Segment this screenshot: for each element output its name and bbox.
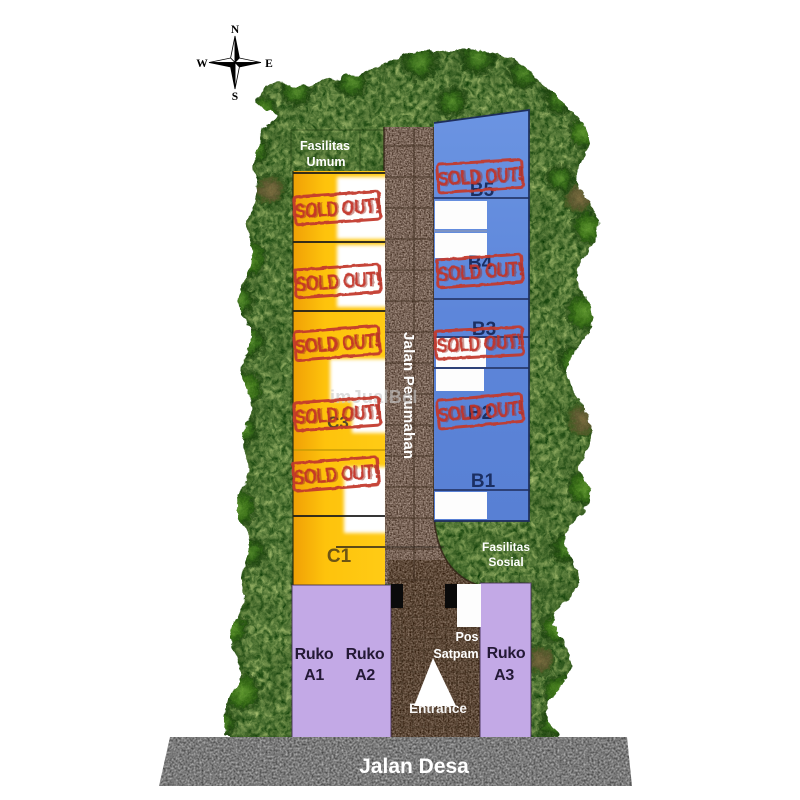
svg-text:C1: C1	[327, 546, 352, 567]
svg-text:Ruko: Ruko	[295, 646, 334, 663]
svg-text:Umum: Umum	[307, 155, 346, 169]
svg-text:A3: A3	[494, 667, 514, 684]
svg-text:Fasilitas: Fasilitas	[300, 139, 350, 153]
svg-text:Ruko: Ruko	[487, 645, 526, 662]
svg-text:Entrance: Entrance	[409, 701, 467, 716]
svg-text:N: N	[231, 24, 240, 36]
svg-text:Satpam: Satpam	[433, 647, 478, 661]
svg-text:Fasilitas: Fasilitas	[482, 540, 530, 554]
svg-text:A2: A2	[355, 667, 375, 684]
svg-text:Pos: Pos	[456, 630, 479, 644]
svg-text:A1: A1	[304, 667, 324, 684]
svg-text:E: E	[265, 58, 273, 70]
svg-text:Ruko: Ruko	[346, 646, 385, 663]
svg-text:SOLD OUT!: SOLD OUT!	[436, 329, 522, 357]
svg-text:S: S	[232, 91, 238, 103]
svg-text:Jalan Desa: Jalan Desa	[359, 755, 469, 778]
svg-text:B1: B1	[471, 471, 496, 492]
svg-text:Sosial: Sosial	[488, 555, 523, 569]
svg-text:W: W	[196, 58, 208, 70]
